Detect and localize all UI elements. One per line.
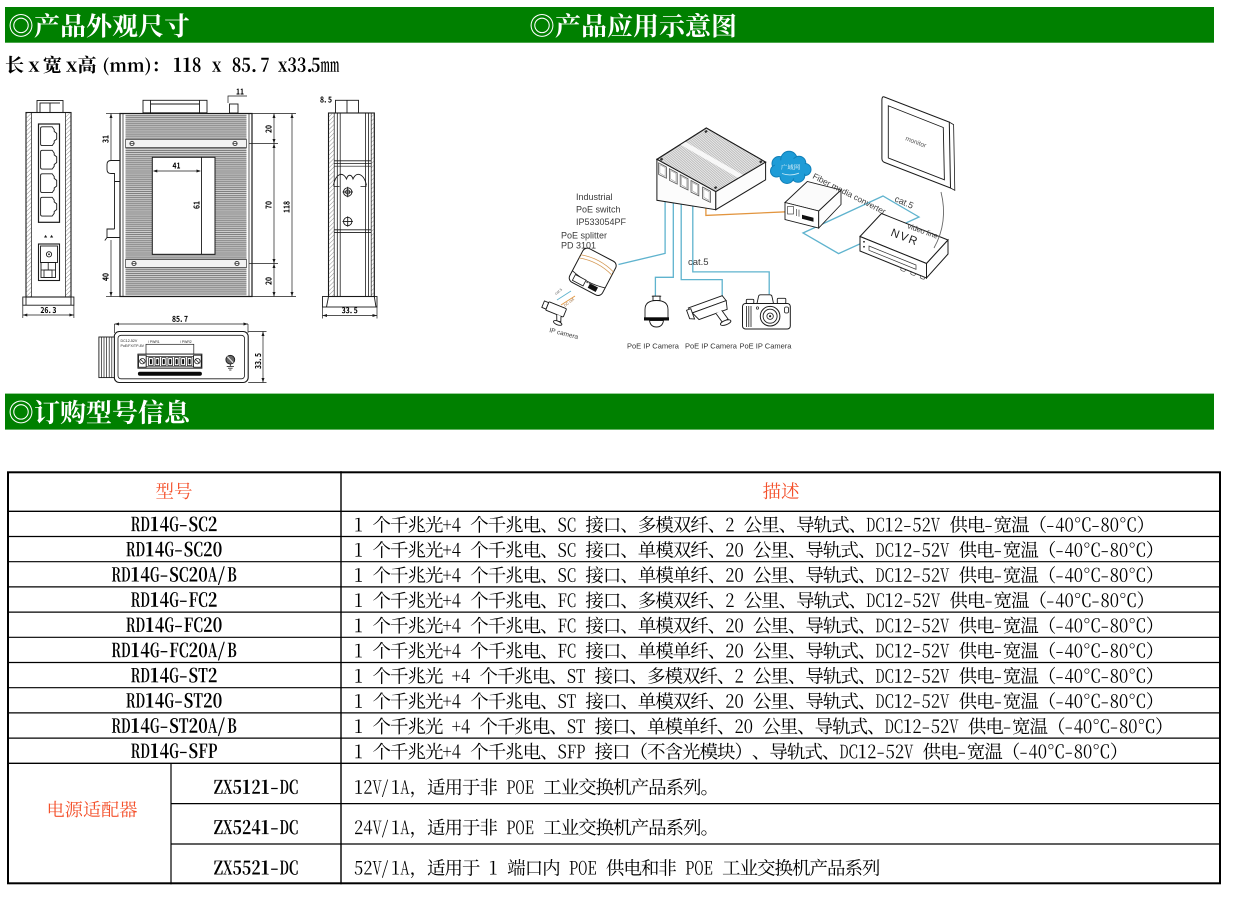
svg-text:/ PWR2: / PWR2 <box>180 340 192 344</box>
svg-text:PoE IP Camera: PoE IP Camera <box>740 342 793 351</box>
svg-text:/ PWR1: / PWR1 <box>148 340 160 344</box>
svg-text:PoE IP Camera: PoE IP Camera <box>685 342 738 351</box>
svg-text:DC12-52V: DC12-52V <box>121 339 138 343</box>
svg-text:PoE IP Camera: PoE IP Camera <box>627 342 680 351</box>
svg-text:PoE/FX/TP-8V: PoE/FX/TP-8V <box>121 344 145 348</box>
svg-text:cat.5: cat.5 <box>688 257 709 268</box>
